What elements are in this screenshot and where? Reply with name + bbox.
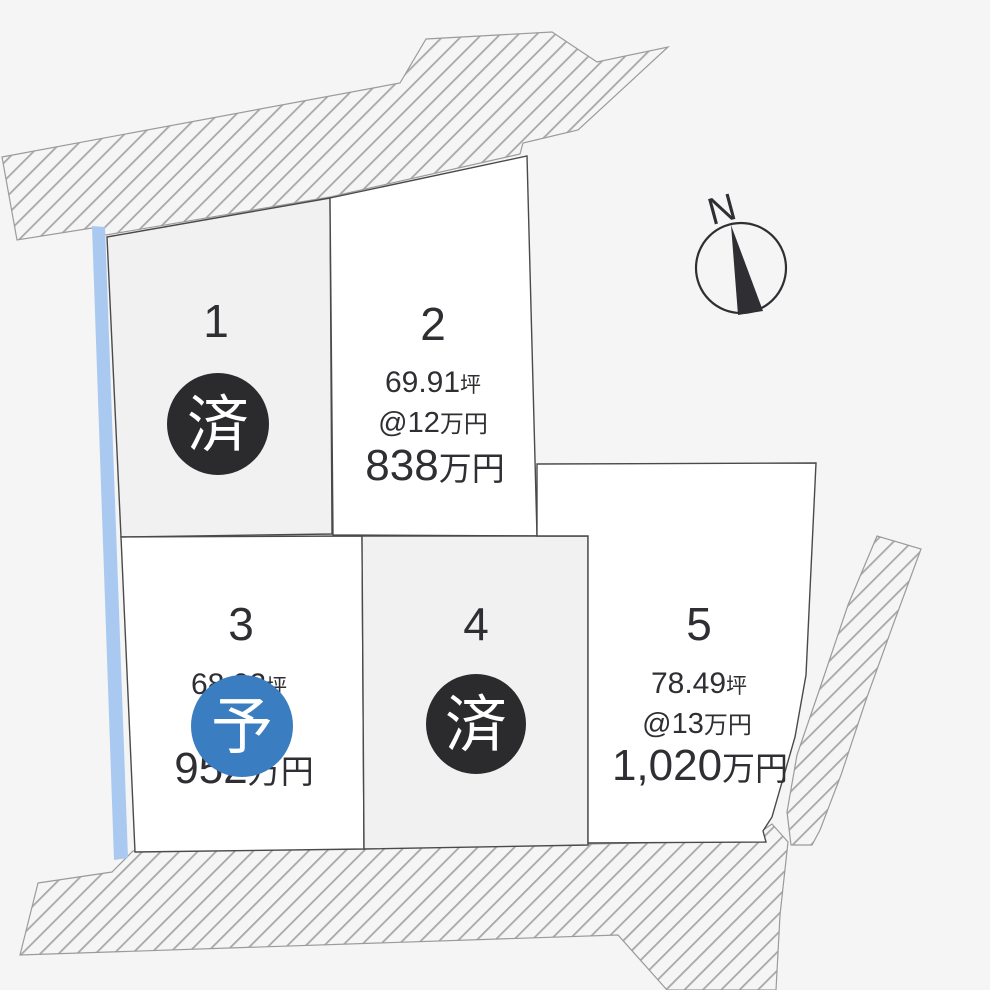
lot-2-unit-price-value: @12 xyxy=(378,407,440,439)
lot-1-number: 1 xyxy=(203,295,229,347)
lot-5-area-unit: 坪 xyxy=(726,675,747,698)
lot-2-number: 2 xyxy=(420,298,446,350)
lot-5-price-unit: 万円 xyxy=(722,750,788,787)
lot-5-unit-price: @13万円 xyxy=(642,708,752,740)
lot-5-number: 5 xyxy=(686,598,712,650)
site-plan: 1 済 2 69.91坪 @12万円 838万円 3 68.02坪 952万円 … xyxy=(0,0,990,990)
lot-3-badge-label: 予 xyxy=(211,693,273,762)
lot-2-unit-price: @12万円 xyxy=(378,407,488,439)
lot-3: 3 68.02坪 952万円 予 xyxy=(121,536,364,852)
lot-2-price-unit: 万円 xyxy=(439,450,505,487)
lot-5-area-value: 78.49 xyxy=(651,667,726,700)
lot-2-area-value: 69.91 xyxy=(385,366,460,399)
lot-1: 1 済 xyxy=(107,198,332,537)
lot-2-unit-price-unit: 万円 xyxy=(440,411,488,438)
lot-4: 4 済 xyxy=(362,536,588,849)
lot-2-price-value: 838 xyxy=(365,441,438,490)
lot-3-number: 3 xyxy=(228,598,254,650)
lot-4-badge-label: 済 xyxy=(445,691,507,760)
lot-4-number: 4 xyxy=(463,598,489,650)
lot-2: 2 69.91坪 @12万円 838万円 xyxy=(330,156,537,536)
compass: N xyxy=(696,186,786,315)
compass-n-label: N xyxy=(703,186,740,234)
lot-5-unit-price-value: @13 xyxy=(642,708,704,740)
compass-needle-icon xyxy=(731,225,763,315)
lot-1-shape[interactable] xyxy=(107,198,332,537)
lot-5-price-value: 1,020 xyxy=(612,741,722,790)
lot-2-area-unit: 坪 xyxy=(460,374,481,397)
lot-1-badge-label: 済 xyxy=(187,391,249,460)
lot-5-unit-price-unit: 万円 xyxy=(704,712,752,739)
